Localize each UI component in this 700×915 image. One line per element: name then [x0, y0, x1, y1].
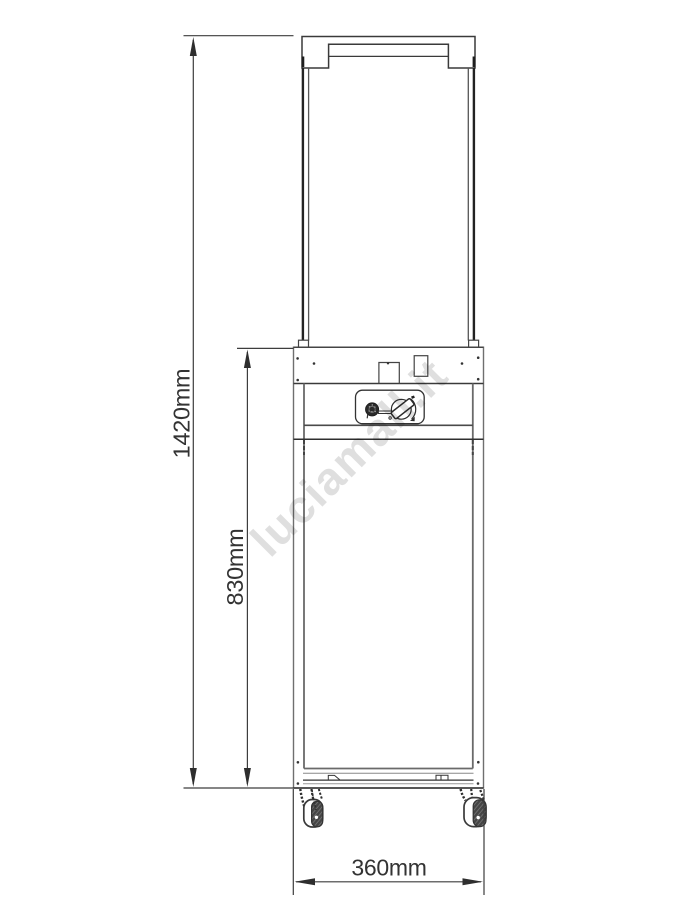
svg-text:1420mm: 1420mm [169, 369, 195, 459]
svg-text:830mm: 830mm [222, 529, 248, 606]
svg-text:360mm: 360mm [351, 855, 426, 881]
